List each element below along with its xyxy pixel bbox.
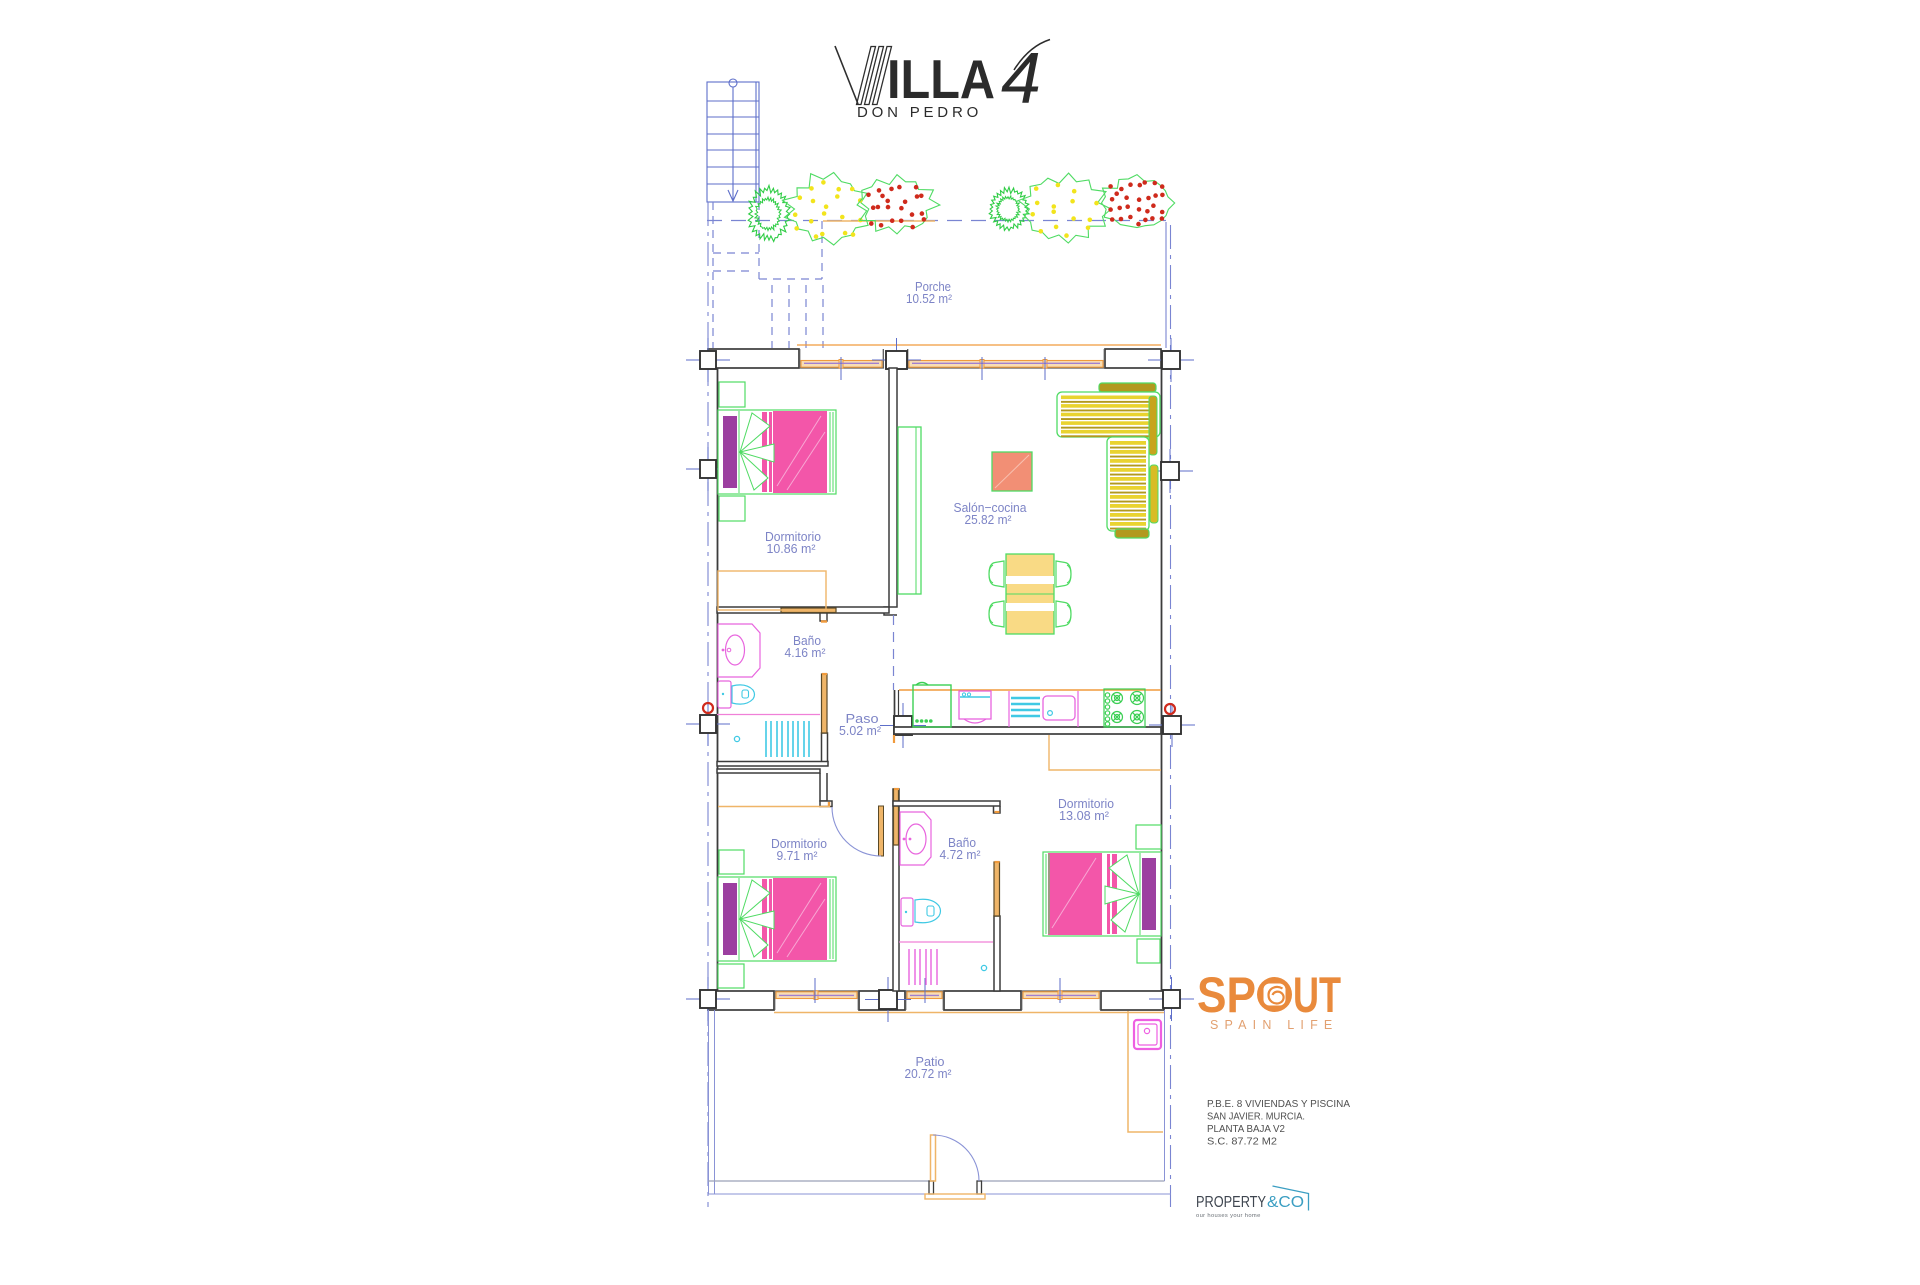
svg-text:PLANTA BAJA V2: PLANTA BAJA V2	[1207, 1123, 1285, 1135]
svg-text:our houses your home: our houses your home	[1196, 1213, 1261, 1219]
svg-text:S.C. 87.72 M2: S.C. 87.72 M2	[1207, 1136, 1277, 1148]
svg-text:13.08 m²: 13.08 m²	[1059, 808, 1110, 823]
svg-text:UT: UT	[1293, 967, 1341, 1023]
svg-text:SAN JAVIER. MURCIA.: SAN JAVIER. MURCIA.	[1207, 1111, 1305, 1123]
svg-text:SPAIN LIFE: SPAIN LIFE	[1210, 1018, 1338, 1032]
svg-text:P.B.E. 8 VIVIENDAS Y PISCI: P.B.E. 8 VIVIENDAS Y PISCINA	[1207, 1098, 1350, 1110]
svg-text:&CO: &CO	[1267, 1194, 1304, 1211]
svg-text:ILLA: ILLA	[887, 48, 995, 110]
svg-text:20.72 m²: 20.72 m²	[905, 1066, 953, 1081]
svg-text:9.71 m²: 9.71 m²	[777, 848, 819, 863]
svg-text:4.16 m²: 4.16 m²	[785, 645, 827, 660]
svg-text:5.02 m²: 5.02 m²	[839, 723, 882, 738]
svg-text:4: 4	[1001, 39, 1041, 119]
svg-text:PROPERTY: PROPERTY	[1196, 1194, 1266, 1211]
svg-text:25.82 m²: 25.82 m²	[965, 512, 1013, 527]
svg-text:SP: SP	[1197, 967, 1256, 1023]
svg-text:10.52 m²: 10.52 m²	[906, 291, 953, 306]
svg-text:4.72 m²: 4.72 m²	[940, 847, 982, 862]
svg-text:DON PEDRO: DON PEDRO	[857, 104, 982, 121]
svg-text:10.86 m²: 10.86 m²	[767, 541, 817, 556]
